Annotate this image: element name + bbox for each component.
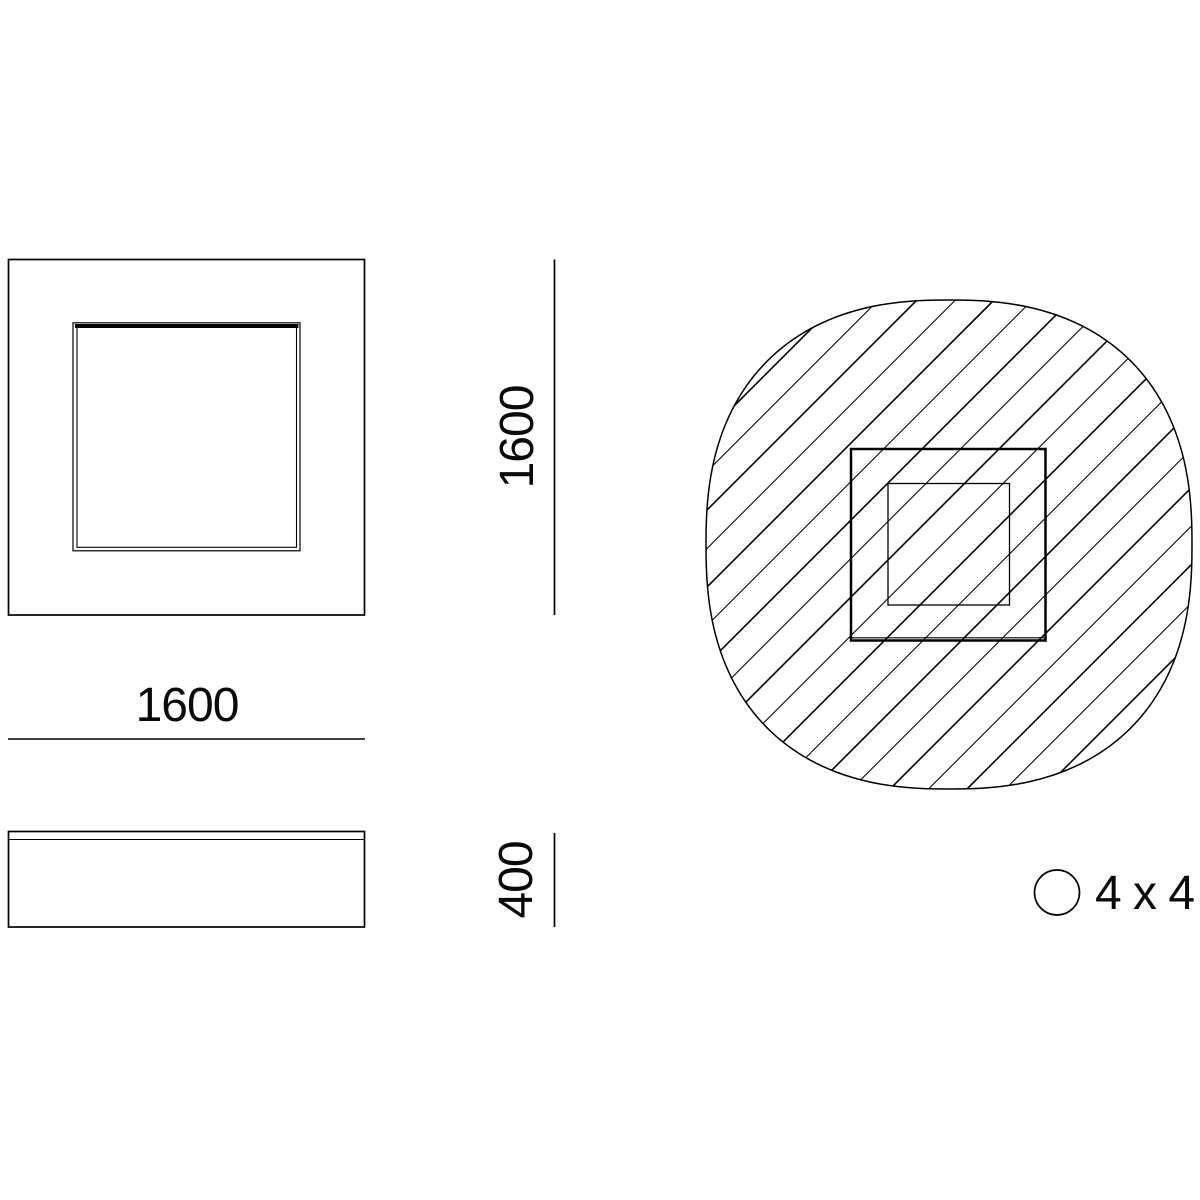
hatch-line: [582, 300, 1071, 789]
plan-outer-square: [9, 260, 365, 616]
hatch-line: [390, 300, 879, 789]
hatch-line: [313, 300, 802, 789]
hatch-line: [274, 300, 763, 789]
hatch-lines: [236, 300, 1200, 789]
top-view-hatched: [236, 300, 1200, 789]
side-outer-rect: [9, 832, 365, 928]
hatch-line: [1121, 300, 1200, 789]
hatch-line: [698, 300, 1187, 789]
hatch-line: [621, 300, 1110, 789]
hatch-line: [1044, 300, 1200, 789]
plan-width-label: 1600: [136, 679, 239, 732]
hatch-line: [467, 300, 956, 789]
hatch-line: [775, 300, 1200, 789]
hatch-line: [1006, 300, 1200, 789]
plan-lid-outer-square: [73, 323, 300, 551]
side-height-dimension: 400: [490, 833, 555, 927]
side-view: [9, 832, 365, 928]
plan-lid-inner-square: [77, 327, 297, 548]
hatch-line: [236, 300, 725, 789]
circle-icon: [1035, 870, 1080, 915]
technical-drawing-page: 1600 1600 400 4 x 4: [0, 0, 1200, 1200]
technical-drawing: 1600 1600 400 4 x 4: [0, 0, 1200, 1200]
hatch-line: [659, 300, 1148, 789]
hatch-line: [929, 300, 1200, 789]
cutout-inner-square: [888, 484, 1010, 606]
hatch-line: [1160, 300, 1200, 789]
plan-view: [9, 260, 365, 616]
plan-height-label: 1600: [491, 386, 544, 489]
side-height-label: 400: [490, 841, 543, 918]
legend-label: 4 x 4: [1095, 867, 1194, 920]
plan-width-dimension: 1600: [8, 679, 365, 739]
hatch-line: [428, 300, 917, 789]
cutout-outer-square: [851, 449, 1046, 641]
squircle-outline: [706, 300, 1192, 789]
hatch-line: [544, 300, 1033, 789]
hatch-line: [505, 300, 994, 789]
legend: 4 x 4: [1035, 867, 1195, 920]
hatch-line: [351, 300, 840, 789]
plan-height-dimension: 1600: [491, 260, 555, 616]
